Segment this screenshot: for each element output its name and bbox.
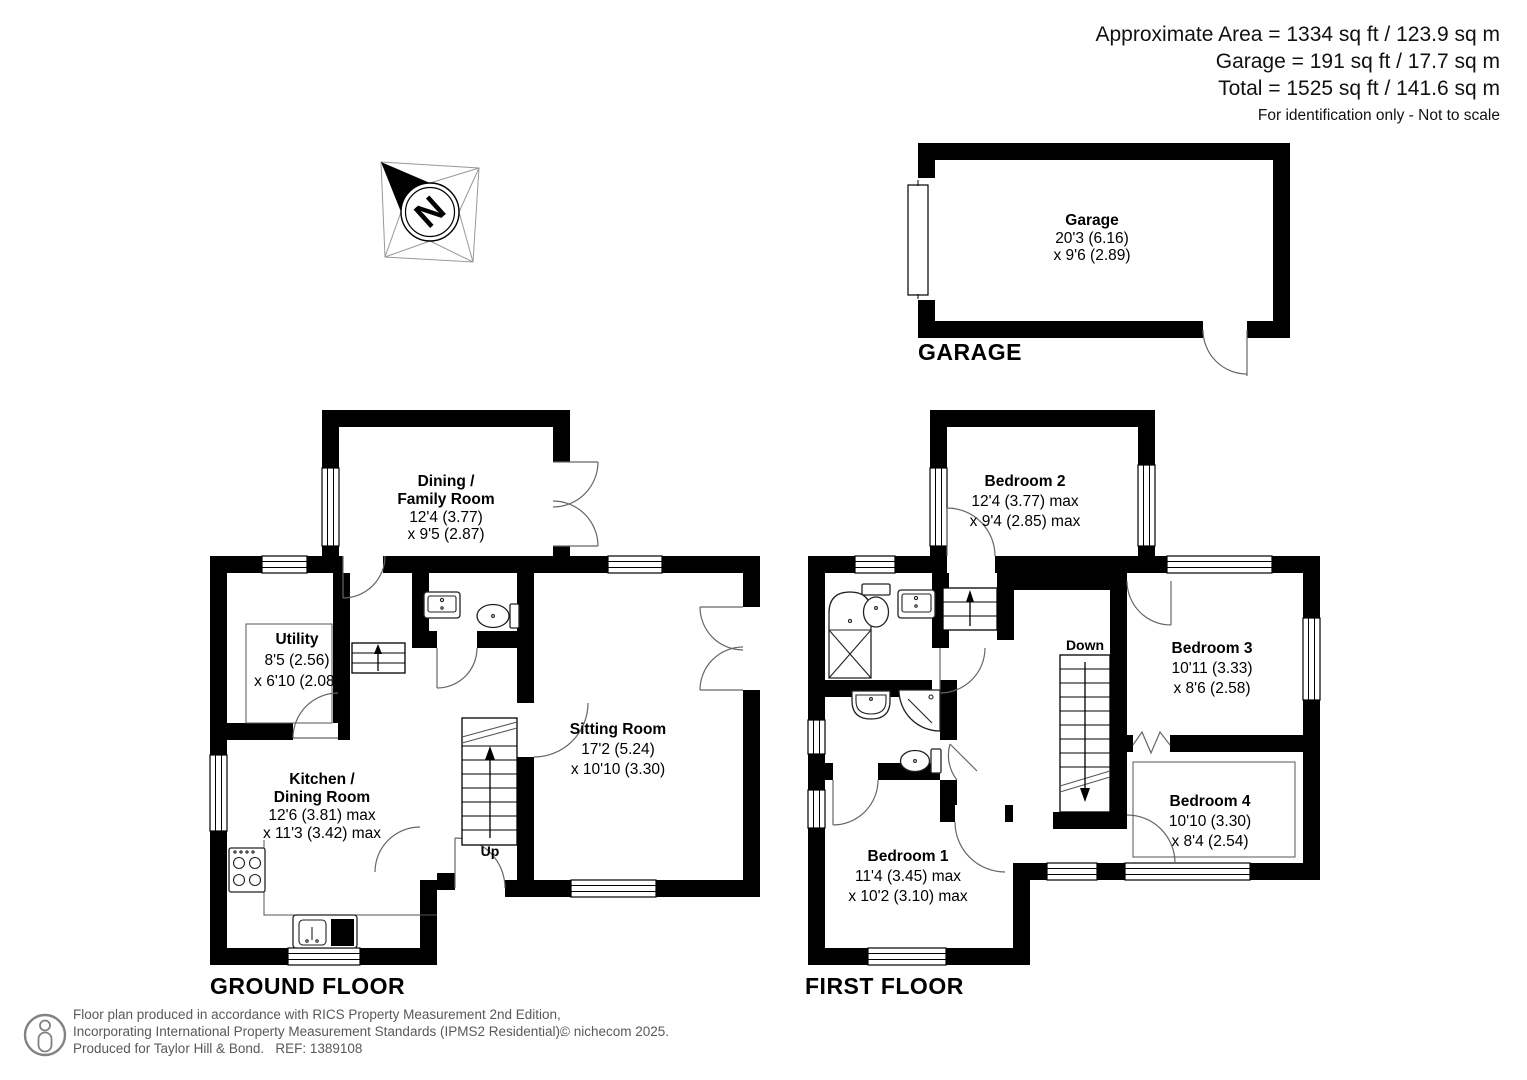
total-area-text: Total = 1525 sq ft / 141.6 sq m (1218, 77, 1500, 100)
window (930, 468, 947, 546)
kitchen-counter-line (264, 840, 437, 915)
footer-line1: Floor plan produced in accordance with R… (73, 1007, 561, 1022)
footer-line2: Incorporating International Property Mea… (73, 1024, 564, 1039)
room-label-kitchen: Kitchen / Dining Room 12'6 (3.81) max x … (263, 771, 381, 842)
sitting-name: Sitting Room (570, 721, 666, 738)
bedroom2-dim2: x 9'4 (2.85) max (970, 513, 1081, 530)
ground-floor-room-labels: Dining / Family Room 12'4 (3.77) x 9'5 (… (254, 473, 666, 842)
garage-room-label: Garage 20'3 (6.16) x 9'6 (2.89) (1053, 212, 1130, 264)
stairs-down-label: Down (1066, 637, 1104, 653)
window (1303, 618, 1320, 700)
footer-copyright: © nichecom 2025. (560, 1024, 669, 1039)
window (808, 720, 825, 754)
scale-note-text: For identification only - Not to scale (1258, 107, 1500, 124)
window (855, 556, 895, 573)
dining-dim1: 12'4 (3.77) (409, 509, 483, 526)
window (808, 790, 825, 828)
bedroom3-dim2: x 8'6 (2.58) (1173, 680, 1250, 697)
bedroom3-dim1: 10'11 (3.33) (1171, 660, 1252, 677)
kitchen-dim1: 12'6 (3.81) max (268, 807, 375, 824)
bedroom2-name: Bedroom 2 (985, 473, 1066, 490)
window (571, 880, 656, 897)
garage-plan: Garage 20'3 (6.16) x 9'6 (2.89) GARAGE (908, 143, 1290, 376)
toilet-icon (901, 749, 942, 773)
kitchen-name2: Dining Room (274, 789, 370, 806)
room-label-bedroom3: Bedroom 3 10'11 (3.33) x 8'6 (2.58) (1171, 640, 1252, 697)
window (1167, 556, 1272, 573)
garage-dim1: 20'3 (6.16) (1055, 230, 1129, 247)
bedroom1-name: Bedroom 1 (868, 848, 949, 865)
sitting-dim2: x 10'10 (3.30) (571, 761, 665, 778)
bedroom4-name: Bedroom 4 (1170, 793, 1251, 810)
window (322, 468, 339, 546)
utility-name: Utility (275, 631, 318, 648)
window (1138, 465, 1155, 546)
utility-dim1: 8'5 (2.56) (265, 652, 330, 669)
toilet-icon (477, 604, 519, 628)
first-floor-plan: Down (805, 410, 1320, 999)
bedroom4-dim1: 10'10 (3.30) (1169, 813, 1251, 830)
utility-dim2: x 6'10 (2.08) (254, 673, 340, 690)
garage-rear-door-opening (1203, 320, 1247, 339)
basin-icon (852, 691, 890, 719)
kitchen-name1: Kitchen / (289, 771, 355, 788)
sink-icon (424, 592, 460, 618)
dining-name2: Family Room (397, 491, 494, 508)
compass-rose-icon: N (381, 162, 479, 262)
garage-dim2: x 9'6 (2.89) (1053, 247, 1130, 264)
room-label-bedroom4: Bedroom 4 10'10 (3.30) x 8'4 (2.54) (1169, 793, 1251, 850)
room-label-dining: Dining / Family Room 12'4 (3.77) x 9'5 (… (397, 473, 494, 543)
window (608, 556, 662, 573)
room-label-bedroom2: Bedroom 2 12'4 (3.77) max x 9'4 (2.85) m… (970, 473, 1081, 530)
shower-icon (899, 690, 940, 731)
bedroom1-dim2: x 10'2 (3.10) max (848, 888, 968, 905)
person-icon (25, 1015, 65, 1055)
window (1047, 863, 1097, 880)
area-summary: Approximate Area = 1334 sq ft / 123.9 sq… (1096, 23, 1501, 124)
footer-block: Floor plan produced in accordance with R… (25, 1007, 669, 1056)
ground-floor-label: GROUND FLOOR (210, 973, 405, 999)
first-floor-stairs: Down (943, 588, 1110, 812)
garage-floor-label: GARAGE (918, 339, 1022, 365)
bedroom4-dim2: x 8'4 (2.54) (1171, 833, 1248, 850)
garage-area-text: Garage = 191 sq ft / 17.7 sq m (1216, 50, 1500, 73)
stairs-up-label: Up (481, 843, 500, 859)
sitting-dim1: 17'2 (5.24) (581, 741, 655, 758)
appliance-icon (331, 919, 354, 946)
garage-name: Garage (1065, 212, 1119, 229)
toilet-icon (862, 584, 890, 627)
ground-floor-plan: Up (210, 410, 760, 999)
bedroom2-dim1: 12'4 (3.77) max (971, 493, 1078, 510)
kitchen-dim2: x 11'3 (3.42) max (263, 825, 381, 842)
approximate-area-text: Approximate Area = 1334 sq ft / 123.9 sq… (1096, 23, 1501, 46)
bedroom1-dim1: 11'4 (3.45) max (855, 868, 961, 885)
footer-line3: Produced for Taylor Hill & Bond. REF: 13… (73, 1041, 362, 1056)
hob-icon (229, 848, 265, 892)
room-label-utility: Utility 8'5 (2.56) x 6'10 (2.08) (254, 631, 340, 690)
dining-name1: Dining / (418, 473, 476, 490)
room-label-bedroom1: Bedroom 1 11'4 (3.45) max x 10'2 (3.10) … (848, 848, 968, 905)
dining-dim2: x 9'5 (2.87) (407, 526, 484, 543)
bedroom3-name: Bedroom 3 (1172, 640, 1253, 657)
sink-icon (898, 590, 935, 618)
window (1125, 863, 1250, 880)
room-label-sitting: Sitting Room 17'2 (5.24) x 10'10 (3.30) (570, 721, 666, 778)
kitchen-sink-icon (293, 915, 357, 948)
window (262, 556, 307, 573)
first-floor-label: FIRST FLOOR (805, 973, 964, 999)
garage-door-panel (908, 185, 928, 295)
window (210, 755, 227, 831)
window (288, 948, 360, 965)
window (868, 948, 946, 965)
